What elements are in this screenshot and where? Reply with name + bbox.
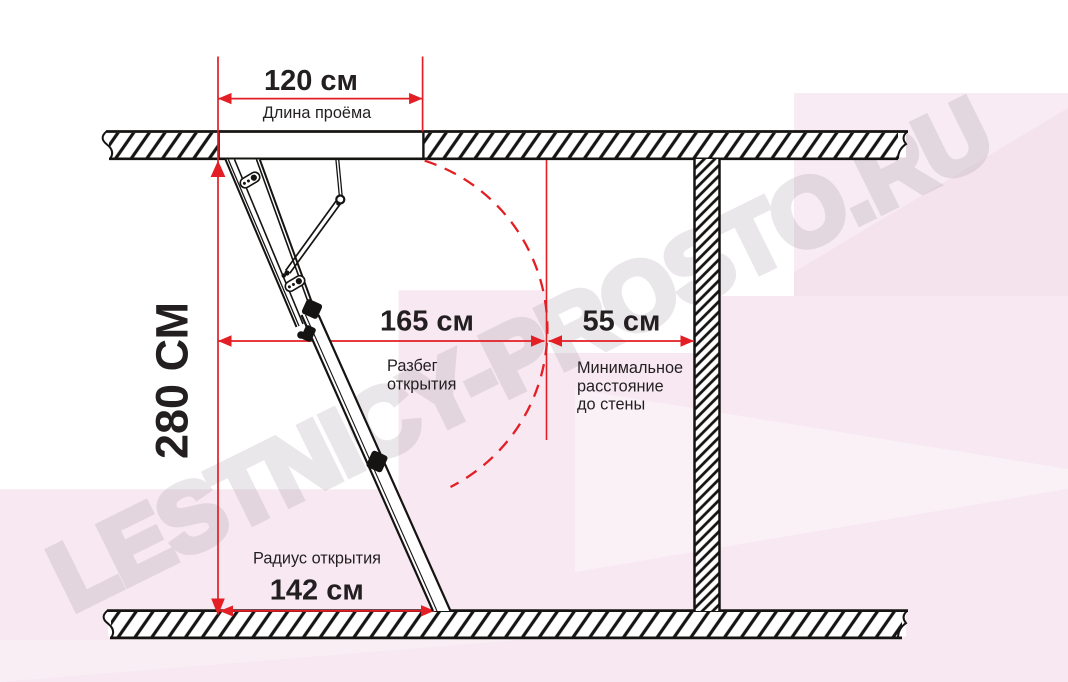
svg-text:расстояние: расстояние <box>577 377 664 395</box>
svg-text:165 см: 165 см <box>380 306 474 338</box>
svg-text:Минимальное: Минимальное <box>577 359 683 377</box>
svg-text:142 см: 142 см <box>270 575 364 607</box>
svg-text:120 см: 120 см <box>264 65 358 97</box>
svg-text:открытия: открытия <box>387 376 456 394</box>
svg-text:Длина проёма: Длина проёма <box>263 104 372 122</box>
svg-text:Разбег: Разбег <box>387 357 438 375</box>
svg-text:Радиус открытия: Радиус открытия <box>253 550 381 568</box>
svg-text:до стены: до стены <box>577 396 645 414</box>
svg-text:55 см: 55 см <box>583 306 661 338</box>
svg-text:280 СМ: 280 СМ <box>147 302 198 459</box>
